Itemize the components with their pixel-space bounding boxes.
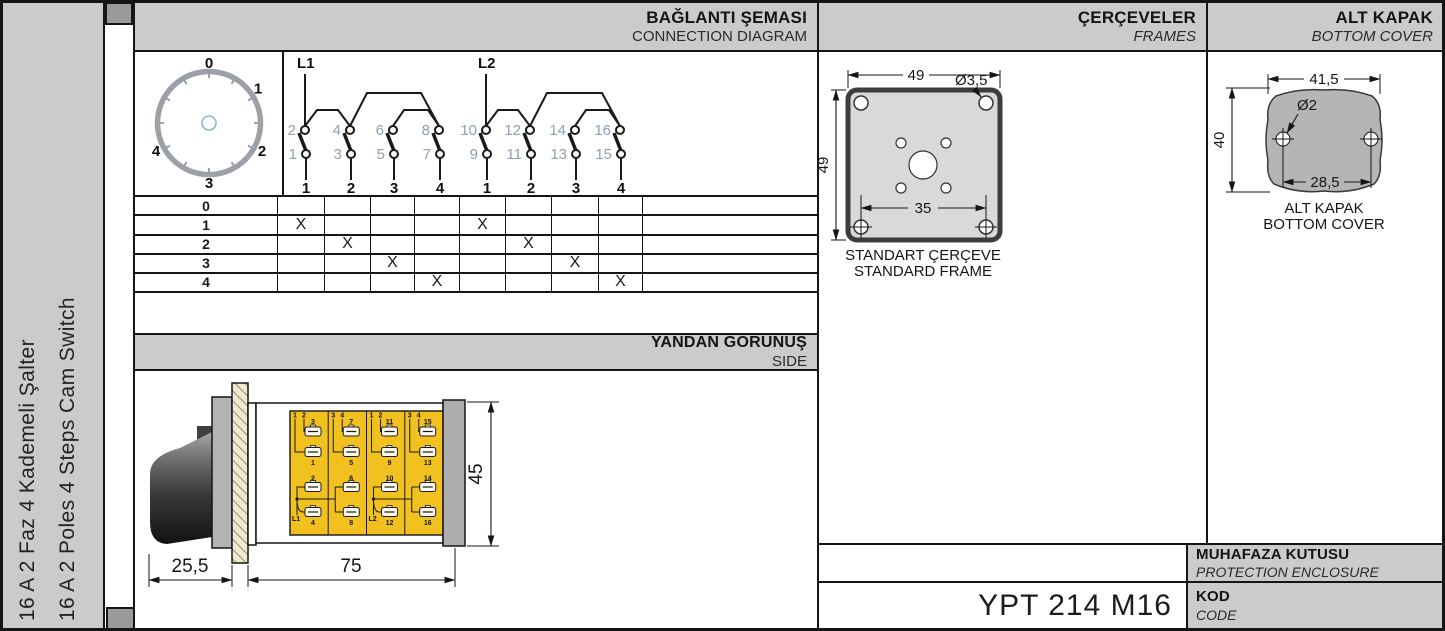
table-cell-mark bbox=[460, 197, 506, 216]
table-cell-mark bbox=[460, 273, 506, 293]
table-cell-mark: X bbox=[552, 254, 599, 274]
header-side-en: SIDE bbox=[772, 353, 807, 370]
contact-number-top: 6 bbox=[376, 122, 384, 139]
table-row: 4XX bbox=[135, 273, 817, 292]
sidebar-title-turkish: 16 A 2 Faz 4 Kademeli Şalter bbox=[16, 339, 40, 621]
module-terminal-number: 6 bbox=[349, 475, 353, 482]
line-code-row-top bbox=[817, 581, 1445, 583]
module-terminal-number: 4 bbox=[340, 413, 344, 420]
bottom-cover-drawing: 41,5 40 Ø2 28,5 ALT KAPAK BOTTOM COVER bbox=[1208, 52, 1442, 302]
module-terminal-number: 3 bbox=[408, 413, 412, 420]
dial-box: 01234 bbox=[135, 52, 284, 195]
protection-tr: MUHAFAZA KUTUSU bbox=[1196, 546, 1349, 565]
protection-enclosure-cell: MUHAFAZA KUTUSU PROTECTION ENCLOSURE bbox=[1188, 545, 1443, 581]
module-line-label: L1 bbox=[292, 516, 300, 523]
module-terminal-number: 8 bbox=[349, 520, 353, 527]
contact-number-top: 16 bbox=[594, 122, 611, 139]
table-row: 1XX bbox=[135, 216, 817, 235]
connection-group-l1: L1211432653874 bbox=[288, 55, 445, 197]
panel-hatch bbox=[232, 383, 248, 563]
dial-position-label: 3 bbox=[205, 175, 213, 192]
cover-caption-tr: ALT KAPAK bbox=[1284, 200, 1363, 217]
table-cell-mark bbox=[460, 254, 506, 274]
table-cell-empty bbox=[643, 254, 817, 274]
module-terminal-number: 16 bbox=[424, 520, 432, 527]
module-terminal-number: 7 bbox=[349, 419, 353, 426]
protection-en: PROTECTION ENCLOSURE bbox=[1196, 564, 1379, 580]
table-cell-mark bbox=[552, 216, 599, 236]
contact-number-bottom: 11 bbox=[506, 146, 522, 163]
divider-frames-cover bbox=[1206, 0, 1208, 545]
module-line-label: L2 bbox=[369, 516, 377, 523]
module-terminal-number: 1 bbox=[311, 460, 315, 467]
table-cell-mark bbox=[371, 235, 415, 255]
module-terminal-number: 15 bbox=[424, 419, 432, 426]
table-row: 0 bbox=[135, 197, 817, 216]
divider-sidebar bbox=[103, 0, 105, 631]
table-cell-position: 4 bbox=[135, 273, 278, 293]
module-terminal-number: 1 bbox=[370, 413, 374, 420]
dim-frame-width: 49 bbox=[908, 67, 925, 84]
dim-cover-width: 41,5 bbox=[1309, 71, 1338, 88]
table-cell-mark bbox=[325, 197, 371, 216]
table-cell-mark bbox=[278, 197, 325, 216]
module-terminal-number: 11 bbox=[386, 419, 394, 426]
contact-number-top: 2 bbox=[288, 122, 296, 139]
contact-number-bottom: 15 bbox=[595, 146, 612, 163]
table-cell-mark bbox=[325, 216, 371, 236]
table-cell-position: 2 bbox=[135, 235, 278, 255]
product-code-cell: YPT 214 M16 bbox=[819, 583, 1186, 628]
header-bottom-cover: ALT KAPAK BOTTOM COVER bbox=[1208, 2, 1443, 50]
frame-small-hole bbox=[896, 138, 906, 148]
binder-tab-top bbox=[105, 2, 133, 25]
dial-position-label: 2 bbox=[258, 143, 266, 160]
table-cell-empty bbox=[643, 216, 817, 236]
header-side-tr: YANDAN GÖRÜNÜŞ bbox=[651, 333, 807, 353]
table-cell-empty bbox=[643, 197, 817, 216]
table-cell-mark: X bbox=[278, 216, 325, 236]
table-cell-mark bbox=[325, 254, 371, 274]
dim-body-length: 75 bbox=[340, 556, 361, 577]
border-top bbox=[0, 0, 1445, 3]
header-frames-tr: ÇERÇEVELER bbox=[1078, 7, 1196, 28]
header-bottom-cover-en: BOTTOM COVER bbox=[1312, 28, 1433, 45]
header-frames: ÇERÇEVELER FRAMES bbox=[819, 2, 1206, 50]
contact-number-bottom: 1 bbox=[289, 146, 297, 163]
dial-position-label: 1 bbox=[254, 81, 262, 98]
module-terminal-number: 2 bbox=[379, 413, 383, 420]
contact-number-top: 12 bbox=[504, 122, 521, 139]
frame-hole-top-left bbox=[854, 96, 868, 110]
table-cell-mark bbox=[415, 216, 460, 236]
module-terminal-number: 12 bbox=[386, 520, 394, 527]
table-cell-mark bbox=[506, 197, 552, 216]
module-terminal-number: 9 bbox=[388, 460, 392, 467]
table-cell-mark bbox=[506, 254, 552, 274]
table-cell-position: 3 bbox=[135, 254, 278, 274]
table-cell-mark bbox=[415, 235, 460, 255]
table-cell-mark bbox=[599, 197, 643, 216]
table-cell-empty bbox=[643, 273, 817, 293]
knob bbox=[150, 432, 212, 544]
table-cell-mark bbox=[415, 197, 460, 216]
header-side-view: YANDAN GÖRÜNÜŞ SIDE bbox=[135, 333, 817, 371]
module-terminal-number: 5 bbox=[349, 460, 353, 467]
connection-diagram-drawing: L1211432653874L21091121121413316154 bbox=[284, 52, 817, 195]
table-cell-mark bbox=[552, 235, 599, 255]
end-cap bbox=[443, 400, 465, 546]
table-cell-mark bbox=[552, 197, 599, 216]
module-terminal-number: 10 bbox=[386, 475, 394, 482]
contact-number-top: 14 bbox=[549, 122, 566, 139]
sidebar-title-english: 16 A 2 Poles 4 Steps Cam Switch bbox=[56, 297, 80, 621]
table-cell-mark: X bbox=[371, 254, 415, 274]
table-cell-mark: X bbox=[415, 273, 460, 293]
dim-front-depth: 25,5 bbox=[172, 556, 209, 577]
table-cell-mark bbox=[278, 235, 325, 255]
module-terminal-number: 3 bbox=[331, 413, 335, 420]
table-cell-mark bbox=[278, 273, 325, 293]
divider-sections bbox=[817, 0, 819, 631]
header-frames-en: FRAMES bbox=[1133, 28, 1196, 45]
code-label-cell: KOD CODE bbox=[1188, 583, 1443, 628]
contact-number-bottom: 3 bbox=[334, 146, 342, 163]
module-terminal-number: 4 bbox=[417, 413, 421, 420]
table-cell-mark: X bbox=[599, 273, 643, 293]
line-header-bottom bbox=[133, 50, 1445, 52]
connection-group-l2: L21091121121413316154 bbox=[460, 55, 626, 197]
datasheet-page: { "sidebar": { "title_tr": "16 A 2 Faz 4… bbox=[0, 0, 1445, 631]
table-cell-mark bbox=[506, 216, 552, 236]
table-cell-mark: X bbox=[325, 235, 371, 255]
table-cell-mark bbox=[599, 254, 643, 274]
dim-body-height: 45 bbox=[466, 463, 487, 484]
frame-center-hole bbox=[909, 151, 937, 179]
table-cell-mark bbox=[460, 235, 506, 255]
table-cell-mark bbox=[506, 273, 552, 293]
frame-small-hole bbox=[941, 138, 951, 148]
mounting-plate bbox=[212, 397, 232, 548]
dim-cover-height: 40 bbox=[1211, 132, 1228, 149]
body-step bbox=[248, 403, 256, 545]
dial-center-mark bbox=[202, 116, 216, 130]
module-terminal-number: 2 bbox=[302, 413, 306, 420]
divider-main-left bbox=[133, 0, 135, 631]
module-terminal-number: 14 bbox=[424, 475, 432, 482]
table-cell-mark bbox=[371, 273, 415, 293]
cover-caption-en: BOTTOM COVER bbox=[1263, 216, 1385, 233]
switching-table: 01XX2XX3XX4XX bbox=[135, 195, 817, 292]
dim-cover-hole-dia: Ø2 bbox=[1297, 97, 1317, 114]
standard-frame-drawing: 49 Ø3,5 49 35 STANDART ÇERÇEVE STANDARD … bbox=[819, 52, 1206, 372]
module-terminal-number: 3 bbox=[311, 419, 315, 426]
divider-bottom-right bbox=[1186, 545, 1188, 631]
frame-caption-en: STANDARD FRAME bbox=[854, 263, 992, 280]
contact-number-bottom: 7 bbox=[423, 146, 431, 163]
table-cell-mark bbox=[325, 273, 371, 293]
table-cell-mark bbox=[552, 273, 599, 293]
table-cell-mark bbox=[371, 197, 415, 216]
dim-frame-hole-dia: Ø3,5 bbox=[955, 72, 988, 89]
binder-strip bbox=[105, 2, 133, 629]
table-cell-mark: X bbox=[460, 216, 506, 236]
module-terminal-number: 1 bbox=[293, 413, 297, 420]
dim-frame-inner: 35 bbox=[915, 200, 932, 217]
code-en: CODE bbox=[1196, 607, 1236, 623]
line-label: L1 bbox=[297, 55, 315, 72]
dial-position-label: 0 bbox=[205, 55, 213, 72]
line-bottom-block-top bbox=[817, 543, 1445, 545]
header-connection-en: CONNECTION DIAGRAM bbox=[632, 28, 807, 45]
contact-number-top: 10 bbox=[460, 122, 477, 139]
dial-ring bbox=[158, 72, 261, 175]
contact-number-bottom: 13 bbox=[550, 146, 567, 163]
module-terminal-number: 4 bbox=[311, 520, 315, 527]
table-cell-mark bbox=[599, 216, 643, 236]
header-connection-tr: BAĞLANTI ŞEMASI bbox=[646, 7, 807, 28]
frame-hole-top-right bbox=[979, 96, 993, 110]
dim-cover-holes-span: 28,5 bbox=[1310, 174, 1339, 191]
contact-number-top: 8 bbox=[422, 122, 430, 139]
binder-tab-bottom bbox=[106, 607, 133, 628]
table-cell-mark: X bbox=[506, 235, 552, 255]
header-bottom-cover-tr: ALT KAPAK bbox=[1336, 7, 1434, 28]
module-terminal-number: 13 bbox=[424, 460, 432, 467]
table-row: 3XX bbox=[135, 254, 817, 273]
side-view-drawing: 123124L1347568121191012L23415131416 25,5… bbox=[135, 373, 817, 627]
table-cell-mark bbox=[371, 216, 415, 236]
code-tr: KOD bbox=[1196, 588, 1230, 607]
table-cell-position: 1 bbox=[135, 216, 278, 236]
table-cell-mark bbox=[599, 235, 643, 255]
dial-position-label: 4 bbox=[152, 143, 161, 160]
header-connection-diagram: BAĞLANTI ŞEMASI CONNECTION DIAGRAM bbox=[135, 2, 817, 50]
table-cell-empty bbox=[643, 235, 817, 255]
contact-number-top: 4 bbox=[333, 122, 341, 139]
border-left bbox=[0, 0, 3, 631]
table-cell-mark bbox=[415, 254, 460, 274]
table-row: 2XX bbox=[135, 235, 817, 254]
line-label: L2 bbox=[478, 55, 496, 72]
frame-small-hole bbox=[941, 183, 951, 193]
frame-small-hole bbox=[896, 183, 906, 193]
product-code: YPT 214 M16 bbox=[978, 589, 1172, 623]
module-terminal-number: 2 bbox=[311, 475, 315, 482]
contact-number-bottom: 9 bbox=[470, 146, 478, 163]
contact-number-bottom: 5 bbox=[377, 146, 385, 163]
frame-caption-tr: STANDART ÇERÇEVE bbox=[845, 247, 1001, 264]
table-cell-mark bbox=[278, 254, 325, 274]
table-cell-position: 0 bbox=[135, 197, 278, 216]
rotary-dial-drawing: 01234 bbox=[135, 52, 282, 195]
